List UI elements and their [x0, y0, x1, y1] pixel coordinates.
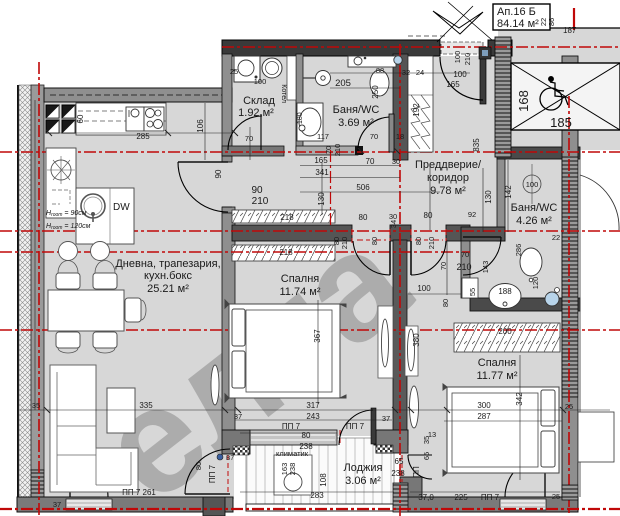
svg-text:70: 70	[461, 250, 469, 259]
svg-text:188: 188	[498, 287, 512, 296]
svg-text:100: 100	[453, 51, 462, 64]
svg-text:18: 18	[396, 132, 404, 141]
svg-text:В7: В7	[226, 455, 234, 462]
svg-text:Спалня: Спалня	[281, 273, 320, 285]
svg-text:238: 238	[288, 463, 297, 476]
svg-text:Баня/WC: Баня/WC	[333, 104, 380, 116]
svg-text:DW: DW	[113, 202, 130, 213]
svg-text:Преддверие/: Преддверие/	[415, 159, 482, 171]
svg-text:90: 90	[214, 169, 223, 178]
svg-text:70: 70	[366, 157, 375, 166]
svg-text:22: 22	[552, 233, 560, 242]
svg-text:70: 70	[370, 132, 378, 141]
svg-text:55: 55	[468, 288, 477, 296]
svg-text:Спалня: Спалня	[478, 357, 517, 369]
svg-text:30: 30	[392, 157, 400, 166]
svg-text:Ап.16 Б: Ап.16 Б	[497, 6, 536, 18]
svg-text:Лоджия: Лоджия	[344, 462, 383, 474]
svg-text:250: 250	[371, 85, 380, 99]
svg-text:205: 205	[335, 78, 351, 89]
svg-text:287: 287	[477, 412, 491, 421]
svg-text:ПП: ПП	[412, 466, 421, 478]
svg-text:30: 30	[389, 212, 397, 221]
svg-text:11.74 м²: 11.74 м²	[280, 286, 321, 298]
svg-text:210: 210	[252, 196, 269, 207]
svg-text:ПП 7: ПП 7	[208, 464, 217, 483]
svg-text:34: 34	[389, 220, 398, 228]
svg-text:90: 90	[251, 185, 263, 196]
svg-text:335: 335	[139, 401, 153, 410]
svg-text:35: 35	[422, 436, 431, 444]
svg-text:106: 106	[196, 119, 205, 133]
svg-text:192: 192	[412, 103, 421, 117]
svg-text:835: 835	[472, 138, 481, 152]
svg-text:380: 380	[412, 333, 421, 347]
svg-text:210: 210	[427, 237, 436, 250]
svg-text:286: 286	[514, 244, 523, 257]
svg-text:60: 60	[76, 114, 85, 123]
svg-text:25: 25	[230, 67, 238, 76]
svg-text:1.92 м²: 1.92 м²	[238, 107, 274, 119]
svg-text:Склад: Склад	[243, 95, 275, 107]
svg-text:80: 80	[194, 462, 203, 470]
svg-text:80: 80	[302, 431, 311, 440]
svg-text:86: 86	[547, 18, 556, 26]
svg-text:367: 367	[313, 329, 322, 343]
svg-text:187: 187	[563, 26, 577, 35]
svg-text:24: 24	[416, 68, 424, 77]
svg-text:165: 165	[314, 156, 328, 165]
svg-text:25: 25	[552, 492, 560, 501]
svg-text:300: 300	[477, 401, 491, 410]
svg-text:100: 100	[254, 77, 267, 86]
svg-text:218: 218	[280, 213, 294, 222]
svg-text:коридор: коридор	[427, 172, 469, 184]
svg-text:506: 506	[356, 183, 370, 192]
svg-text:143: 143	[481, 261, 490, 274]
svg-text:108: 108	[319, 473, 328, 487]
svg-text:117: 117	[317, 132, 329, 141]
svg-text:35: 35	[32, 401, 40, 410]
svg-text:342: 342	[515, 392, 524, 406]
svg-text:283: 283	[310, 491, 324, 500]
svg-text:ПП 7 261: ПП 7 261	[122, 488, 156, 497]
svg-text:120: 120	[531, 277, 540, 290]
svg-text:100: 100	[417, 284, 431, 293]
svg-text:130: 130	[317, 192, 326, 206]
svg-text:65: 65	[395, 457, 404, 466]
svg-text:80: 80	[370, 237, 379, 245]
svg-text:37: 37	[382, 414, 390, 423]
svg-text:218: 218	[279, 248, 293, 257]
svg-text:37: 37	[53, 500, 61, 509]
svg-text:210: 210	[340, 237, 349, 250]
svg-text:Баня/WC: Баня/WC	[511, 202, 558, 214]
svg-text:Hroom = 120см: Hroom = 120см	[46, 223, 91, 231]
svg-text:80: 80	[424, 211, 433, 220]
svg-text:25.21 м²: 25.21 м²	[147, 283, 189, 295]
svg-text:80: 80	[414, 237, 423, 245]
svg-text:341: 341	[315, 168, 329, 177]
svg-text:80: 80	[441, 299, 450, 307]
svg-text:180: 180	[297, 112, 304, 124]
svg-text:11.77 м²: 11.77 м²	[477, 370, 518, 382]
svg-text:9.78 м²: 9.78 м²	[430, 185, 466, 197]
svg-text:100: 100	[526, 180, 539, 189]
svg-text:Дневна, трапезария,: Дневна, трапезария,	[115, 258, 220, 270]
svg-text:243: 243	[306, 412, 320, 421]
svg-text:80: 80	[359, 213, 368, 222]
svg-text:ПП 7: ПП 7	[481, 493, 500, 502]
svg-text:165: 165	[446, 80, 460, 89]
svg-text:3.06 м²: 3.06 м²	[345, 475, 381, 487]
svg-text:92: 92	[468, 210, 476, 219]
svg-text:70: 70	[439, 262, 448, 270]
svg-text:ПП 7: ПП 7	[346, 422, 365, 431]
svg-text:200: 200	[498, 327, 512, 336]
svg-text:130: 130	[484, 190, 493, 204]
svg-text:Котел: Котел	[280, 84, 287, 103]
svg-text:317: 317	[306, 401, 320, 410]
svg-text:225: 225	[454, 493, 468, 502]
svg-text:37: 37	[234, 412, 242, 421]
svg-text:285: 285	[136, 132, 150, 141]
svg-text:кухн.бокс: кухн.бокс	[144, 270, 192, 282]
svg-text:185: 185	[550, 115, 572, 130]
svg-text:3.69 м²: 3.69 м²	[338, 117, 374, 129]
svg-text:238: 238	[299, 442, 313, 451]
svg-text:70: 70	[245, 134, 253, 143]
svg-text:25: 25	[565, 402, 573, 411]
svg-text:32: 32	[402, 68, 410, 77]
svg-text:210: 210	[456, 262, 471, 272]
svg-text:65: 65	[422, 452, 431, 460]
svg-text:238: 238	[391, 469, 405, 478]
svg-text:210: 210	[463, 53, 472, 66]
svg-text:84.14 м²: 84.14 м²	[497, 18, 539, 30]
svg-text:37,0: 37,0	[418, 493, 434, 502]
svg-text:Hroom = 90см: Hroom = 90см	[46, 210, 87, 218]
svg-text:70: 70	[324, 146, 333, 154]
svg-text:4.26 м²: 4.26 м²	[516, 215, 552, 227]
svg-text:210: 210	[333, 144, 342, 157]
svg-text:168: 168	[516, 90, 531, 112]
svg-text:88: 88	[376, 66, 384, 75]
svg-text:100: 100	[453, 70, 467, 79]
svg-text:ПП 7: ПП 7	[282, 422, 301, 431]
svg-text:142: 142	[504, 185, 513, 199]
